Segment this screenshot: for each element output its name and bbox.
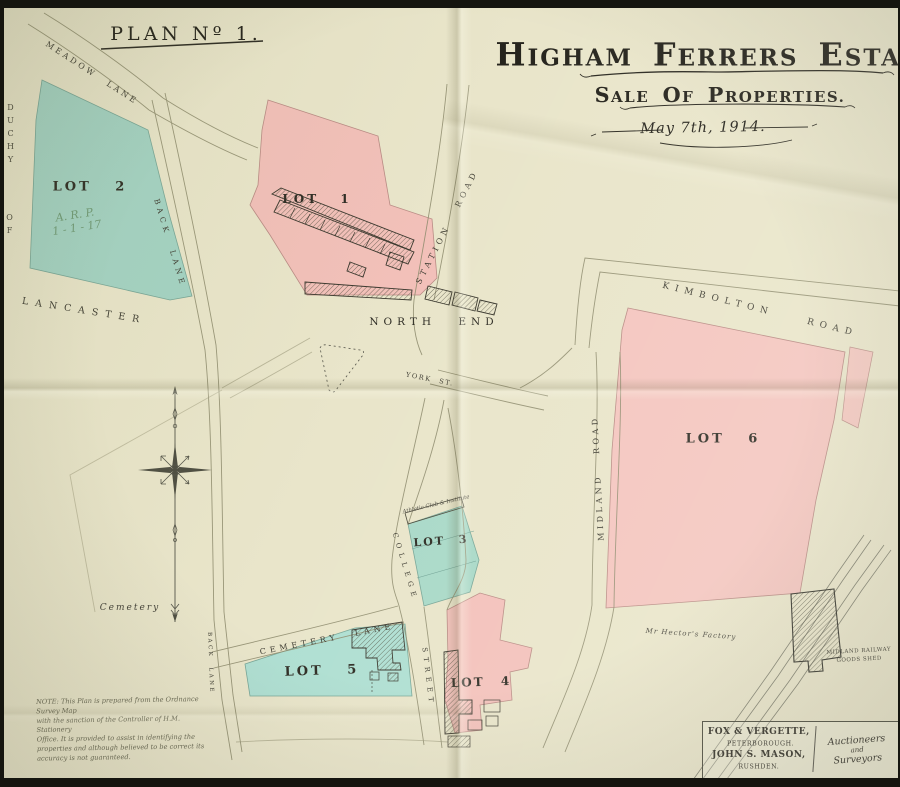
firm-name: FOX & VERGETTE, bbox=[703, 727, 815, 737]
lot-5-label: LOT 5 bbox=[284, 662, 359, 680]
plan-number-title: Plan Nº 1. bbox=[110, 23, 262, 45]
sale-date: May 7th, 1914. bbox=[640, 119, 766, 137]
auctioneer-firms: FOX & VERGETTE, PETERBOROUGH. JOHN S. MA… bbox=[703, 727, 815, 773]
auctioneers-imprint-box: FOX & VERGETTE, PETERBOROUGH. JOHN S. MA… bbox=[702, 721, 900, 779]
firm-name: JOHN S. MASON, bbox=[703, 750, 815, 760]
surveyors-note: NOTE: This Plan is prepared from the Ord… bbox=[36, 694, 212, 763]
auctioneer-roles: Auctioneers and Surveyors bbox=[814, 732, 900, 768]
lot-6-label: LOT 6 bbox=[686, 432, 761, 447]
sale-subtitle: Sale of Properties. bbox=[595, 83, 846, 107]
lot-4-label: LOT 4 bbox=[451, 674, 512, 690]
place-label-duchy: DUCHY bbox=[6, 103, 15, 168]
firm-town: RUSHDEN. bbox=[727, 763, 791, 770]
subtitle-word: Properties. bbox=[708, 83, 846, 107]
place-label-of: OF bbox=[5, 213, 14, 239]
place-label-cemetery: Cemetery bbox=[100, 603, 160, 613]
place-label-north-end: NORTH END bbox=[369, 316, 498, 328]
photo-edge-left bbox=[0, 0, 4, 787]
subtitle-word: of bbox=[663, 83, 695, 107]
firm-town: PETERBOROUGH. bbox=[727, 740, 791, 747]
subtitle-word: Sale bbox=[595, 83, 650, 107]
photo-edge-top bbox=[0, 0, 900, 8]
title-word: Ferrers bbox=[653, 37, 799, 74]
estate-sale-plan-photo: Plan Nº 1. Higham Ferrers Estate. Sale o… bbox=[0, 0, 900, 787]
lot-6-parcel bbox=[606, 308, 873, 608]
estate-title: Higham Ferrers Estate. bbox=[496, 37, 900, 74]
compass-rose-icon bbox=[138, 386, 212, 622]
lot-2-label: LOT 2 bbox=[53, 180, 128, 195]
title-word: Higham bbox=[496, 37, 633, 74]
lot-1-label: LOT 1 bbox=[282, 192, 351, 206]
photo-edge-bottom bbox=[0, 778, 900, 787]
place-label-goods-shed: MIDLAND RAILWAY GOODS SHED bbox=[826, 645, 891, 665]
north-end-green-dotted bbox=[320, 345, 364, 392]
title-word: Estate. bbox=[819, 37, 900, 74]
